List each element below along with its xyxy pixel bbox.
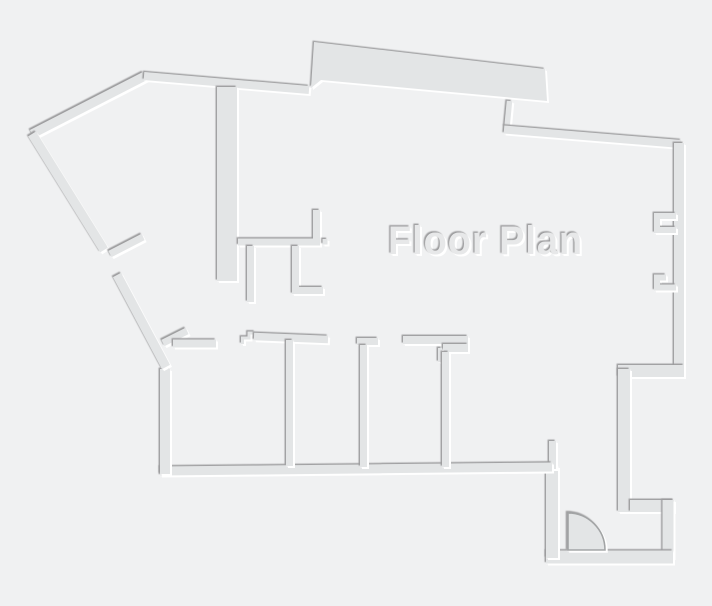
outer-wall-top-right [504, 130, 681, 145]
room-wall-cap-3-block [443, 344, 468, 352]
walls-layer [32, 42, 684, 558]
outer-wall-diagonal-lower-left [117, 275, 166, 367]
outer-wall-diagonal-mid-left [32, 134, 104, 250]
outer-wall-bottom [160, 467, 552, 471]
entry-door-swing [568, 513, 605, 550]
partition-stub-doorway [110, 237, 143, 254]
window-notch-upper [657, 216, 676, 230]
floor-plan-title: Floor Plan [388, 219, 583, 263]
window-notch-lower [657, 278, 676, 288]
outer-wall-diagonal-upper-left [32, 76, 145, 134]
threshold-steps [243, 333, 256, 344]
outer-wall-top-slab [311, 42, 547, 101]
room-wall-top-b [254, 337, 328, 340]
door-stop-dot [323, 239, 328, 245]
closet-stub-b [296, 246, 324, 291]
outer-wall-slab-connector [507, 101, 510, 127]
door-jamb-stub [438, 348, 442, 362]
floor-plan-page: Floor Plan [0, 0, 712, 606]
floor-plan-drawing: Floor Plan [0, 0, 712, 606]
closet-wall-l [238, 210, 317, 242]
